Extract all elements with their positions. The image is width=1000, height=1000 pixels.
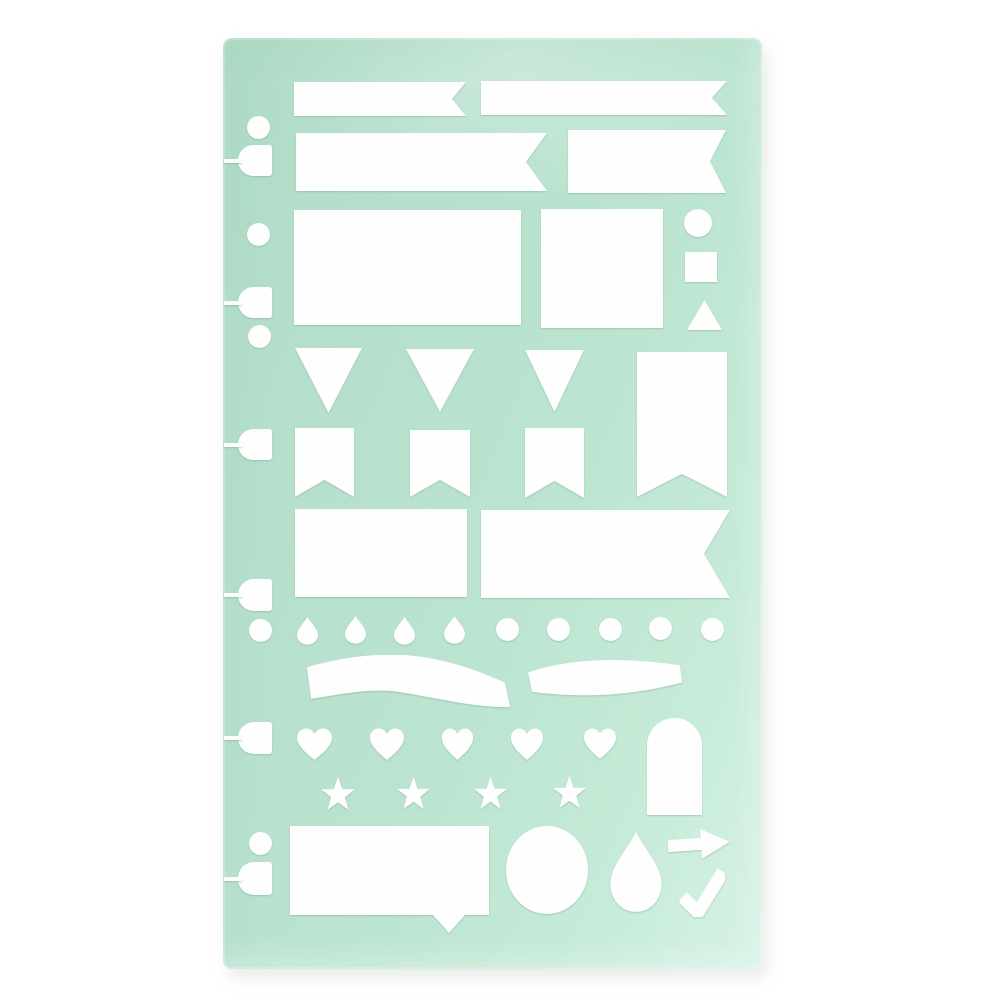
cutout-rect-large bbox=[294, 210, 521, 325]
cutout-drop-1 bbox=[296, 616, 319, 645]
punch-tab-2-slit bbox=[224, 301, 242, 305]
punch-tab-6-slit bbox=[224, 877, 242, 881]
cutout-flag-3 bbox=[525, 428, 584, 498]
cutout-heart-4 bbox=[510, 727, 544, 761]
cutout-drop-4 bbox=[443, 615, 466, 644]
cutout-banner-medium-left bbox=[296, 133, 547, 191]
cutout-arch bbox=[647, 718, 702, 815]
cutout-banner-tall bbox=[637, 352, 727, 497]
punch-tab-3-slit bbox=[224, 443, 242, 447]
cutout-star-1 bbox=[320, 776, 356, 812]
punch-tab-6 bbox=[238, 862, 272, 895]
cutout-teardrop-large bbox=[608, 829, 664, 913]
cutout-banner-thin-left bbox=[294, 82, 466, 116]
cutout-square bbox=[685, 252, 717, 282]
punch-tab-5 bbox=[238, 722, 272, 754]
cutout-drop-2 bbox=[344, 615, 367, 644]
punch-tab-2 bbox=[238, 287, 272, 318]
cutout-heart-3 bbox=[441, 727, 474, 761]
cutout-drop-3 bbox=[393, 616, 416, 645]
punch-circle-1 bbox=[247, 116, 270, 139]
cutout-pennant-1 bbox=[295, 348, 362, 413]
cutout-heart-1 bbox=[296, 727, 333, 761]
cutout-triangle bbox=[687, 300, 722, 330]
cutout-pennant-3 bbox=[525, 350, 584, 412]
cutout-checkmark bbox=[678, 868, 727, 918]
cutout-pennant-2 bbox=[406, 349, 474, 412]
cutout-dot-1 bbox=[496, 618, 519, 641]
cutout-arrow bbox=[667, 827, 731, 862]
cutout-dot-3 bbox=[599, 618, 622, 641]
punch-circle-5 bbox=[249, 832, 272, 855]
stencil-product-photo bbox=[0, 0, 1000, 1000]
punch-tab-1 bbox=[238, 145, 272, 176]
punch-tab-1-slit bbox=[224, 159, 242, 163]
punch-circle-4 bbox=[249, 619, 272, 642]
cutout-ribbon-wave bbox=[305, 655, 510, 708]
cutout-dot-5 bbox=[701, 618, 724, 641]
cutout-ribbon-arc bbox=[528, 655, 682, 698]
punch-circle-3 bbox=[248, 325, 271, 348]
cutout-banner-thin-right bbox=[481, 81, 727, 115]
punch-tab-4 bbox=[238, 579, 272, 611]
cutout-rect-banner bbox=[295, 509, 467, 597]
cutout-flag-2 bbox=[410, 430, 470, 497]
punch-tab-5-slit bbox=[224, 736, 242, 740]
cutout-banner-medium-right bbox=[568, 130, 726, 193]
cutout-star-4 bbox=[552, 775, 587, 810]
cutout-heart-5 bbox=[583, 727, 617, 760]
cutout-star-3 bbox=[473, 776, 508, 811]
cutout-dot-2 bbox=[547, 618, 570, 641]
cutout-dot-4 bbox=[649, 617, 672, 640]
cutout-heart-2 bbox=[369, 727, 405, 761]
cutout-circle-large bbox=[506, 826, 588, 914]
cutout-speech-bubble bbox=[290, 826, 489, 933]
cutout-rect-small bbox=[541, 209, 663, 328]
punch-tab-4-slit bbox=[224, 593, 242, 597]
cutout-banner-wide bbox=[481, 510, 730, 598]
punch-tab-3 bbox=[238, 429, 272, 460]
cutout-flag-1 bbox=[295, 428, 354, 497]
punch-circle-2 bbox=[247, 223, 270, 246]
cutout-circle-small bbox=[684, 209, 712, 237]
cutout-star-2 bbox=[396, 776, 431, 811]
